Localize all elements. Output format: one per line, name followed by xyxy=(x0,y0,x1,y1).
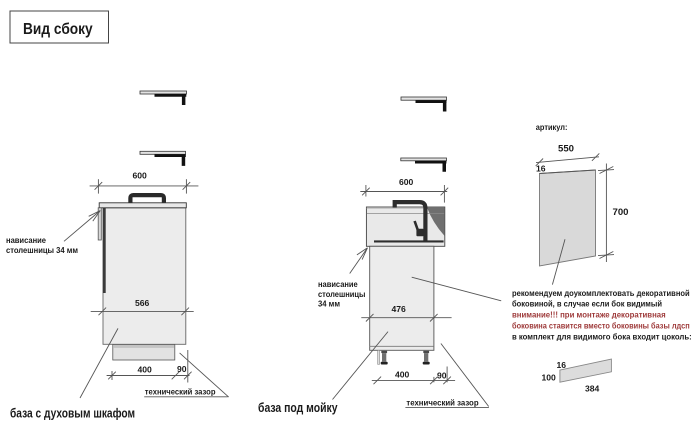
svg-text:600: 600 xyxy=(399,177,414,187)
svg-text:внимание!!! при монтаже декора: внимание!!! при монтаже декоративная xyxy=(512,310,666,320)
svg-text:476: 476 xyxy=(392,304,407,314)
svg-text:артикул:: артикул: xyxy=(536,122,568,132)
svg-text:рекомендуем доукомплектовать д: рекомендуем доукомплектовать декоративно… xyxy=(512,288,690,298)
svg-text:технический зазор: технический зазор xyxy=(145,387,216,397)
svg-text:нависание: нависание xyxy=(6,235,46,245)
svg-text:100: 100 xyxy=(542,372,557,382)
svg-text:400: 400 xyxy=(138,365,153,375)
svg-text:нависание: нависание xyxy=(318,279,358,289)
svg-text:550: 550 xyxy=(558,144,574,155)
svg-text:34 мм: 34 мм xyxy=(318,299,340,309)
svg-text:боковиной, в случае если бок в: боковиной, в случае если бок видимый xyxy=(512,299,662,309)
svg-text:база с духовым шкафом: база с духовым шкафом xyxy=(10,407,135,421)
svg-text:Вид сбоку: Вид сбоку xyxy=(23,21,93,38)
svg-text:в комплект для видимого бока в: в комплект для видимого бока входит цоко… xyxy=(512,332,692,342)
svg-text:технический зазор: технический зазор xyxy=(406,397,478,407)
svg-text:400: 400 xyxy=(395,370,410,380)
svg-text:90: 90 xyxy=(437,370,447,380)
svg-text:боковина ставится вместо боков: боковина ставится вместо боковины базы л… xyxy=(512,321,690,331)
svg-text:90: 90 xyxy=(177,364,187,374)
svg-text:384: 384 xyxy=(585,384,600,394)
svg-text:база под мойку: база под мойку xyxy=(258,401,338,415)
svg-text:600: 600 xyxy=(133,171,148,181)
svg-text:700: 700 xyxy=(613,207,629,218)
svg-text:566: 566 xyxy=(135,298,150,308)
svg-text:16: 16 xyxy=(557,360,567,370)
svg-text:столешницы: столешницы xyxy=(318,289,365,299)
svg-text:столешницы 34 мм: столешницы 34 мм xyxy=(6,245,78,255)
svg-text:16: 16 xyxy=(536,163,546,173)
